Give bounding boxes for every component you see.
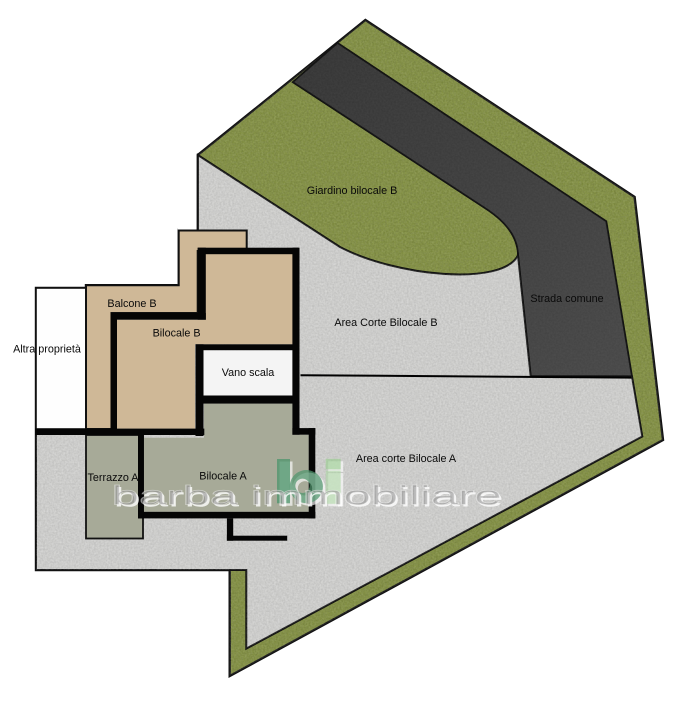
svg-text:Giardino bilocale B: Giardino bilocale B [307, 185, 398, 197]
svg-text:Balcone B: Balcone B [107, 298, 156, 310]
svg-text:Area Corte Bilocale B: Area Corte Bilocale B [334, 317, 437, 329]
svg-text:Vano scala: Vano scala [222, 367, 275, 379]
svg-text:Altra proprietà: Altra proprietà [13, 344, 81, 356]
svg-text:Strada comune: Strada comune [530, 293, 603, 305]
svg-text:Area corte Bilocale A: Area corte Bilocale A [356, 453, 457, 465]
svg-text:barba immobiliare: barba immobiliare [112, 481, 502, 511]
svg-text:Bilocale B: Bilocale B [153, 328, 201, 340]
